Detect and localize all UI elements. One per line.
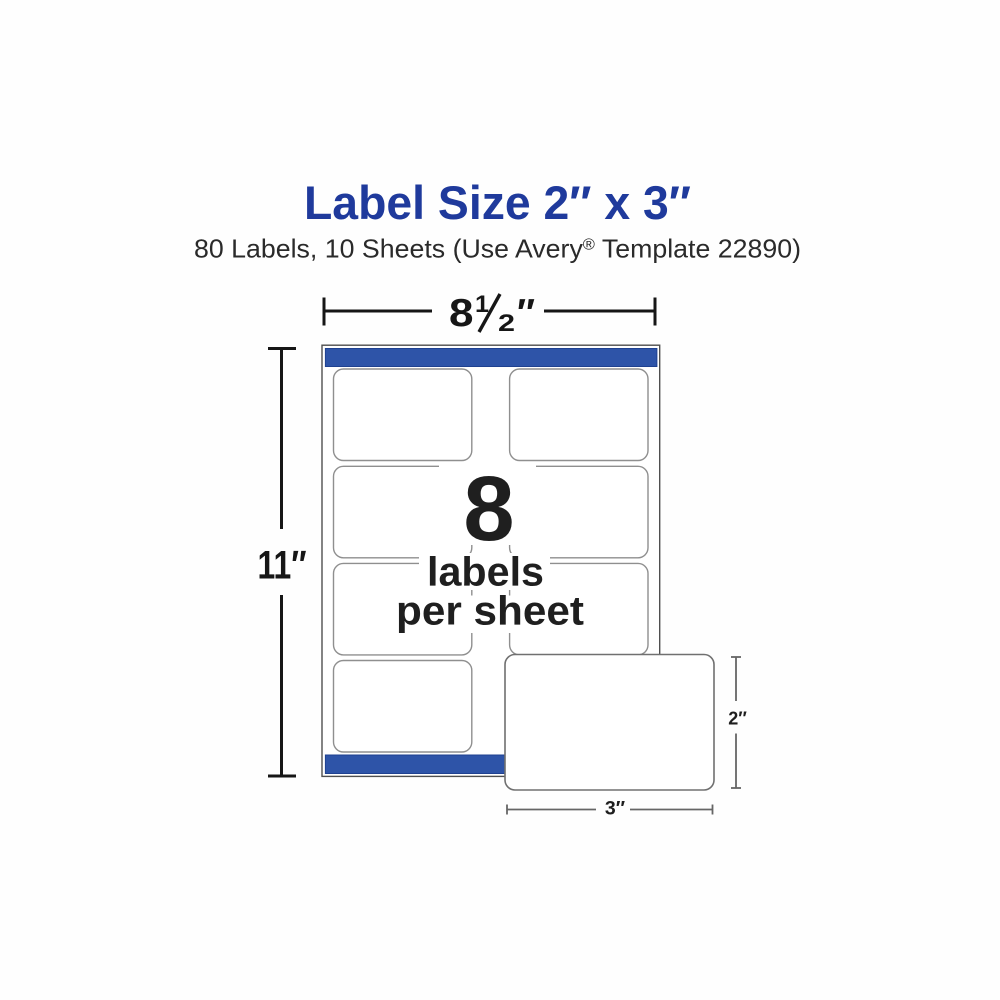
svg-text:3″: 3″ xyxy=(605,798,625,820)
svg-text:2: 2 xyxy=(498,310,515,337)
svg-text:Label Size 2″ x 3″: Label Size 2″ x 3″ xyxy=(304,176,691,229)
svg-text:2″: 2″ xyxy=(728,708,747,728)
svg-text:11″: 11″ xyxy=(258,544,307,588)
svg-text:per sheet: per sheet xyxy=(396,588,584,634)
svg-text:1: 1 xyxy=(475,291,489,318)
svg-text:8: 8 xyxy=(463,458,514,560)
svg-text:80 Labels, 10 Sheets (Use Aver: 80 Labels, 10 Sheets (Use Avery® Templat… xyxy=(194,234,801,264)
svg-text:8: 8 xyxy=(449,292,474,335)
svg-text:″: ″ xyxy=(517,292,535,335)
